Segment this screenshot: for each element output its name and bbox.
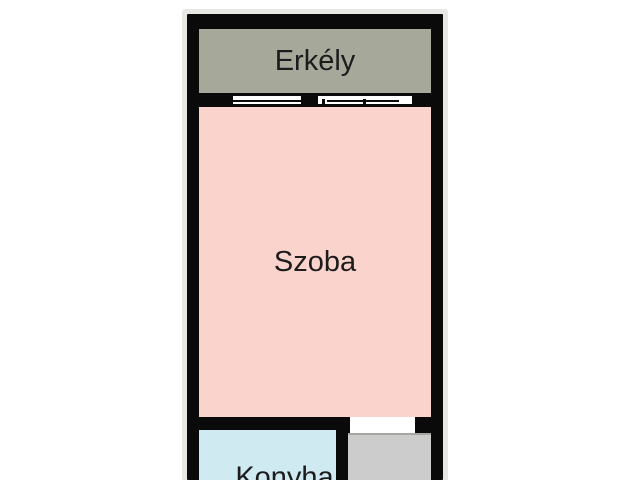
- floorplan-canvas: Erkély Szoba Konyha: [0, 0, 640, 480]
- room-living: Szoba: [199, 107, 431, 417]
- room-door-opening: [350, 417, 415, 433]
- room-balcony-label: Erkély: [275, 45, 356, 78]
- door-frame-tick: [322, 99, 325, 104]
- window-glass-line-left: [233, 100, 302, 102]
- room-balcony: Erkély: [199, 29, 431, 93]
- room-living-label: Szoba: [274, 246, 356, 279]
- door-frame-tick: [363, 99, 366, 104]
- kitchen-hall-wall-lower: [339, 456, 344, 480]
- floorplan-outline: Erkély Szoba Konyha: [187, 14, 443, 480]
- kitchen-hall-wall-upper: [336, 430, 348, 456]
- room-kitchen: Konyha: [199, 430, 336, 480]
- area-hallway: [348, 433, 431, 480]
- room-kitchen-label: Konyha: [235, 462, 333, 480]
- balcony-window-post: [301, 93, 318, 107]
- balcony-window-opening: [233, 96, 412, 104]
